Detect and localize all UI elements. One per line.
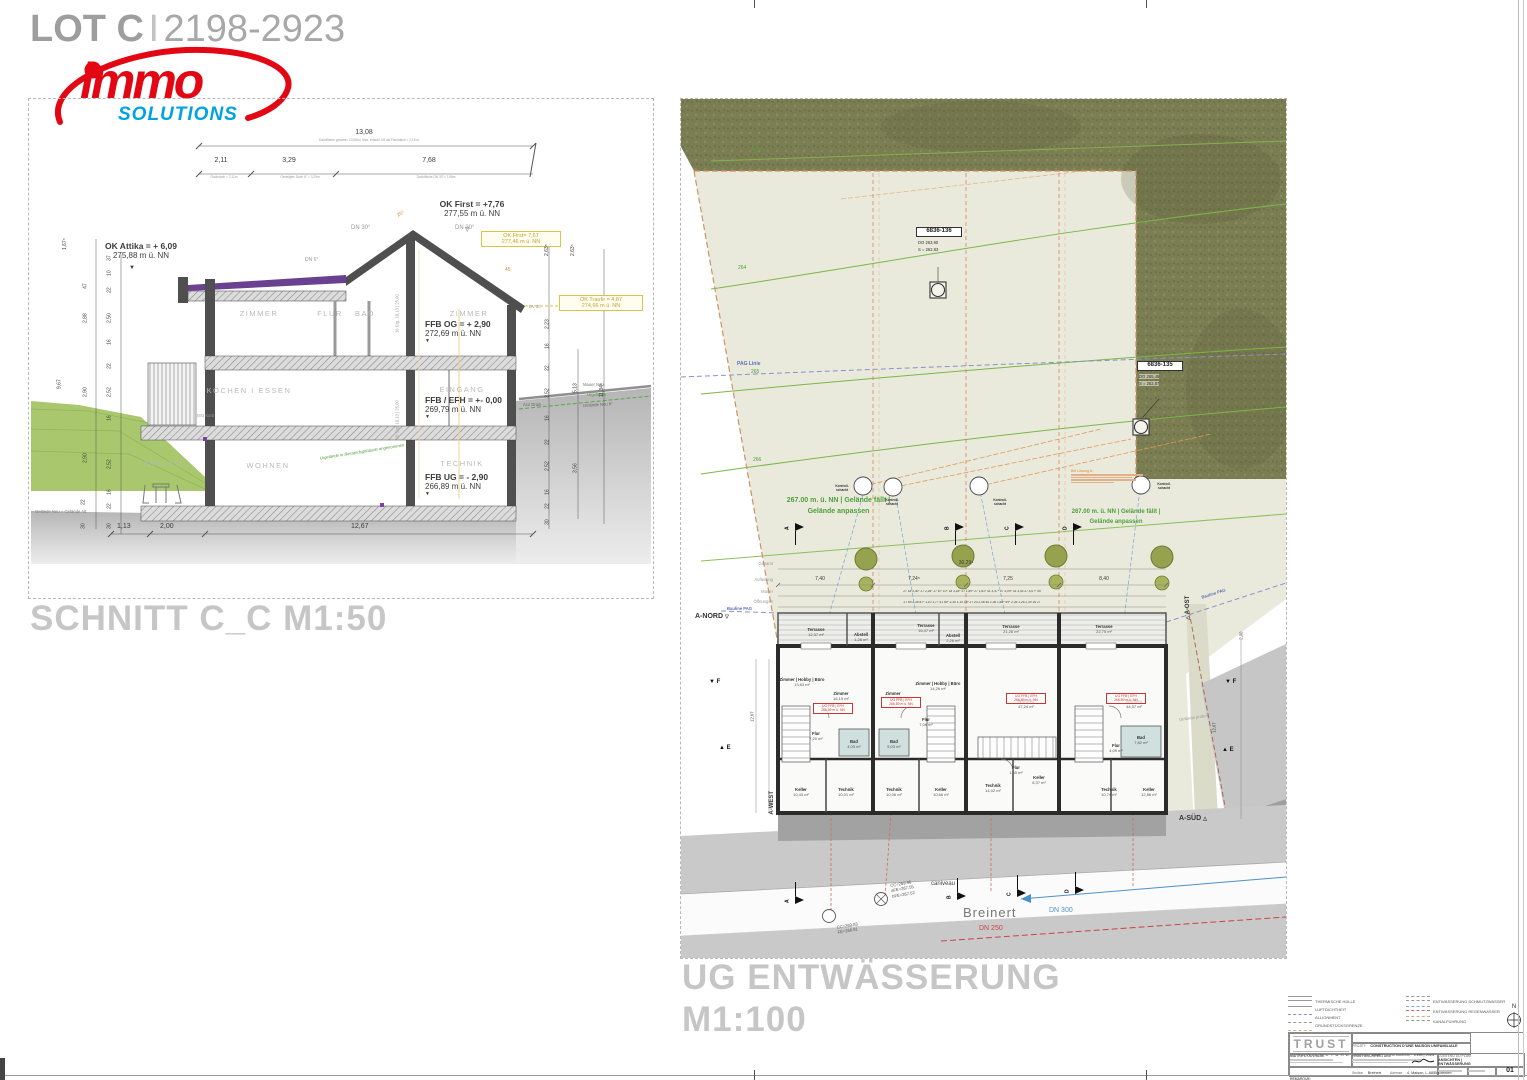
level-ok-traufe-box: OK Traufe = 4,87 274,66 m ü. NN	[559, 295, 643, 311]
terrace-label: Terrasse21,26 m²	[981, 624, 1041, 634]
dn250-label: DN 250	[979, 925, 1003, 934]
dim: 2,52	[107, 459, 113, 469]
note-aco-drain: Aco Drain	[523, 402, 541, 407]
dim: 2,52	[545, 388, 551, 398]
dim: 2,23	[545, 319, 551, 329]
contour-label: 266	[753, 457, 761, 463]
sheet-border	[0, 1075, 1527, 1076]
loesung-note: Bei Lösung A:	[1071, 469, 1143, 484]
dim: 1,67⁵	[62, 238, 68, 250]
terrain-note: Gelände anpassen	[756, 508, 921, 517]
dim: 9,67	[57, 379, 63, 389]
level-ok-attika: OK Attika = + 6,09 275,88 m ü. NN	[81, 241, 201, 260]
dim: 2,52	[545, 461, 551, 471]
fold-mark	[1146, 1070, 1147, 1080]
room-label: Keller10,66 m²	[911, 787, 971, 797]
kontrollschacht-label: Kontroll-schacht	[989, 499, 1011, 507]
legend: THERMISCHE HÜLLE LUFTDICHTHEIT ALLIGNMEN…	[1288, 988, 1524, 1030]
level-box: UG FFB | EFH266,89 m ü. NN	[1006, 693, 1046, 704]
dim: 16	[107, 339, 113, 345]
dim: 16	[107, 489, 113, 495]
dim: 22	[107, 363, 113, 369]
dim-seg1: 2,11	[201, 157, 241, 166]
dim: 1,13	[117, 523, 131, 532]
dim: 22	[545, 439, 551, 445]
roof-pitch-right: DN 30°	[455, 225, 474, 233]
dim: 2,63⁵	[544, 244, 550, 256]
room-label: Keller8,37 m²	[1009, 775, 1069, 785]
marker-e: ▲ E	[719, 745, 731, 753]
pag-linie-label: PAG Linie	[737, 361, 761, 367]
dim: 7,25	[983, 576, 1033, 582]
room-label: Flur1,65 m²	[986, 765, 1046, 775]
terrain-note: 267.00 m. ü. NN | Gelände fällt |	[1041, 509, 1191, 517]
dim: 2,00	[1238, 632, 1243, 640]
architect-cell: TRUST ARCHITECTURE	[1351, 1053, 1439, 1068]
dim: 22	[545, 503, 551, 509]
dim: 2,90	[83, 453, 89, 463]
room-label: Flur7,06 m²	[896, 717, 956, 727]
level-ffb-ug: FFB UG = - 2,90 266,89 m ü. NN ▼	[425, 472, 530, 497]
sheet-border	[1523, 0, 1524, 1080]
dim: 47	[83, 283, 89, 289]
kontrollschacht-label: Kontroll-schacht	[831, 485, 853, 493]
contour-label: 263	[751, 147, 759, 153]
dim: 16	[545, 343, 551, 349]
dim: 2,63⁵	[570, 244, 576, 256]
level-ok-first: OK First = +7,76 277,55 m ü. NN	[407, 199, 537, 218]
manhole-id: 6836-136	[916, 227, 962, 237]
terrace-label: Terrasse16,47 m²	[896, 623, 956, 633]
marker-f: ▼ F	[709, 679, 720, 687]
fold-mark	[754, 0, 755, 8]
north-arrow-icon: N	[1506, 1004, 1522, 1033]
dim-seg2-note: Geneigtes Dach 6° = 3,29m	[255, 176, 345, 180]
drawing-sheet: LOT C I 2198-2923 immo SOLUTIONS	[0, 0, 1527, 1080]
plan-frame: 263 264 265 266 PAG Linie 6836-136 DO 26…	[680, 98, 1287, 959]
note-gelaende-alt: Gelände Neu = Gelände Alt	[35, 509, 86, 514]
level-ffb-eg: FFB / EFH = +- 0,00 269,79 m ü. NN ▼	[425, 395, 535, 420]
marker-a-nord: A-NORD ▽	[695, 613, 729, 622]
street-name: Breinert	[963, 905, 1017, 920]
dim: 16	[545, 489, 551, 495]
signature-icon	[1410, 1056, 1436, 1066]
level-ffb-og: FFB OG = + 2,90 272,69 m ü. NN ▼	[425, 319, 530, 344]
marker-e: ▲ E	[1222, 747, 1234, 755]
chain-label: Gesamt	[721, 561, 773, 566]
dim-seg3-note: Dachfläche DN 30°= 7,68m	[381, 176, 491, 180]
dim-orange: 45	[505, 267, 511, 273]
room-label: Zimmer | Hobby | Büro13,63 m²	[772, 677, 832, 687]
dim: 7,24⁵	[889, 576, 939, 582]
stair-label: 16 Stg. 18,13 | 25,00	[394, 284, 399, 344]
dim: 30	[81, 523, 87, 529]
dim-total-note: Dachfläche gesamt= 13,08m | Max. erlaubt…	[269, 139, 469, 143]
stair-label: 16 Stg. 18,13 | 25,00	[394, 390, 399, 450]
dim: 10	[107, 270, 113, 276]
sheet-border	[1518, 0, 1519, 1080]
roof-pitch-flat: DN 6°	[305, 257, 318, 263]
room-label: KOCHEN I ESSEN	[201, 386, 297, 395]
level-box: UG FFB | EFH266,89 m ü. NN	[1106, 693, 1146, 704]
dim: 16	[545, 415, 551, 421]
section-drawing-frame: 13,08 Dachfläche gesamt= 13,08m | Max. e…	[28, 98, 654, 599]
dim-seg1-note: Flachdach = 2,11m	[195, 176, 253, 180]
room-label: ZIMMER	[229, 309, 289, 318]
dim: 12,67	[351, 523, 369, 532]
dim: 2,52	[107, 387, 113, 397]
room-label: BAD	[349, 309, 381, 318]
dim: 12,67	[750, 711, 755, 721]
marker-a-sued: A-SÜD △	[1179, 815, 1207, 824]
dim-seg3: 7,68	[409, 157, 449, 166]
level-box: UG FFB | EFH266,89 m ü. NN	[813, 703, 853, 714]
room-label: ZIMMER	[437, 309, 501, 318]
fold-mark	[0, 1058, 5, 1080]
roof-pitch-left: DN 30°	[351, 225, 370, 233]
site-plan-drawing	[681, 99, 1286, 958]
dn300-label: DN 300	[1049, 907, 1073, 916]
fold-mark	[1146, 0, 1147, 8]
room-label: WOHNEN	[231, 461, 305, 470]
dim: 22	[81, 499, 87, 505]
dim-row: 27 69 2,35 87⁵ 1,10 1,77 41 59⁵ 2,35 1,1…	[778, 601, 1166, 605]
manhole-data: DO 265,45	[1139, 374, 1159, 379]
level-box: UG FFB | EFH266,89 m ü. NN	[881, 697, 921, 708]
kontrollschacht-label: Kontroll-schacht	[1153, 483, 1175, 491]
chain-label: Mauer	[721, 589, 773, 594]
dim: 30	[545, 519, 551, 525]
kontrollschacht-label: Kontroll-schacht	[881, 499, 903, 507]
section-title: SCHNITT C_C M1:50	[30, 599, 387, 639]
architect-logo: TRUST ARCHITECTURE	[1289, 1033, 1353, 1055]
dim: 8,40	[1079, 576, 1129, 582]
manhole-id: 6836-135	[1137, 361, 1183, 371]
fold-mark	[754, 1070, 755, 1080]
dim: 30	[107, 523, 113, 529]
terrace-label: Terrasse22,75 m²	[1074, 624, 1134, 634]
manhole-data: S = 262,87	[1139, 381, 1159, 386]
chain-label: Aufteilung	[721, 577, 773, 582]
title-block: TRUST ARCHITECTURE MAITRE D'OUVRAGE REMA…	[1288, 1032, 1524, 1076]
dim: 2,50	[107, 313, 113, 323]
dim: 2,00	[160, 523, 174, 532]
manhole-data: DO 263,90	[918, 240, 938, 245]
room-label: EINGANG	[427, 385, 497, 394]
dim-row: 27 18 3,30⁵ 27 2,28⁵ 27 6¹⁵ 10⁵ 18 3,18⁵…	[778, 590, 1166, 594]
room-label: TERRASSE	[133, 461, 191, 468]
plan-scale: M1:100	[682, 1000, 807, 1040]
bauline-label: Bauline PAG	[727, 606, 752, 611]
marker-f: ▼ F	[1225, 679, 1236, 687]
pipe-label: DV 20	[529, 304, 541, 309]
legend-item: KANALFÜHRUNG	[1406, 1010, 1466, 1028]
dim: 12,67	[1212, 722, 1217, 732]
dim-seg2: 3,29	[269, 157, 309, 166]
room-label: Zimmer16,15 m²	[811, 691, 871, 701]
dim: 3,56	[573, 463, 579, 473]
room-label: Zimmer | Hobby | Büro14,26 m²	[908, 681, 968, 691]
plan-title: UG ENTWÄSSERUNG	[682, 958, 1061, 998]
room-label: FLUR	[312, 309, 348, 318]
note-iso-korb: ISO Korb	[197, 413, 214, 418]
room-label: Bad5,03 m²	[864, 739, 924, 749]
caniveau-label: caniveau	[931, 881, 955, 889]
manhole-data: S = 262,63	[918, 247, 938, 252]
dim: 7,40	[795, 576, 845, 582]
dim: 22	[545, 365, 551, 371]
dim: 22	[107, 503, 113, 509]
dim: 2,88	[83, 313, 89, 323]
room-label: TECHNIK	[431, 459, 493, 468]
dim: 5,13	[573, 383, 579, 393]
level-marker-icon: ▼	[129, 265, 135, 273]
dim-total: 13,08	[329, 129, 399, 138]
chain-label: Öffnungen	[721, 599, 773, 604]
dim: 2,90	[83, 387, 89, 397]
terrace-label: Abstell2,26 m²	[923, 633, 983, 643]
room-label: Bad7,82 m²	[1111, 735, 1171, 745]
dim: 37	[107, 255, 113, 261]
terrace-label: Abstell1,26 m²	[831, 632, 891, 642]
contour-label: 264	[738, 265, 746, 271]
dim: 16	[107, 415, 113, 421]
dim: 11,34⁵	[599, 383, 605, 397]
dim: 22	[107, 287, 113, 293]
room-label: Keller12,86 m²	[1119, 787, 1179, 797]
dim: 30,29⁵	[936, 560, 996, 566]
marker-a-ost: △ A-OST	[1185, 596, 1193, 620]
contour-label: 265	[751, 369, 759, 375]
